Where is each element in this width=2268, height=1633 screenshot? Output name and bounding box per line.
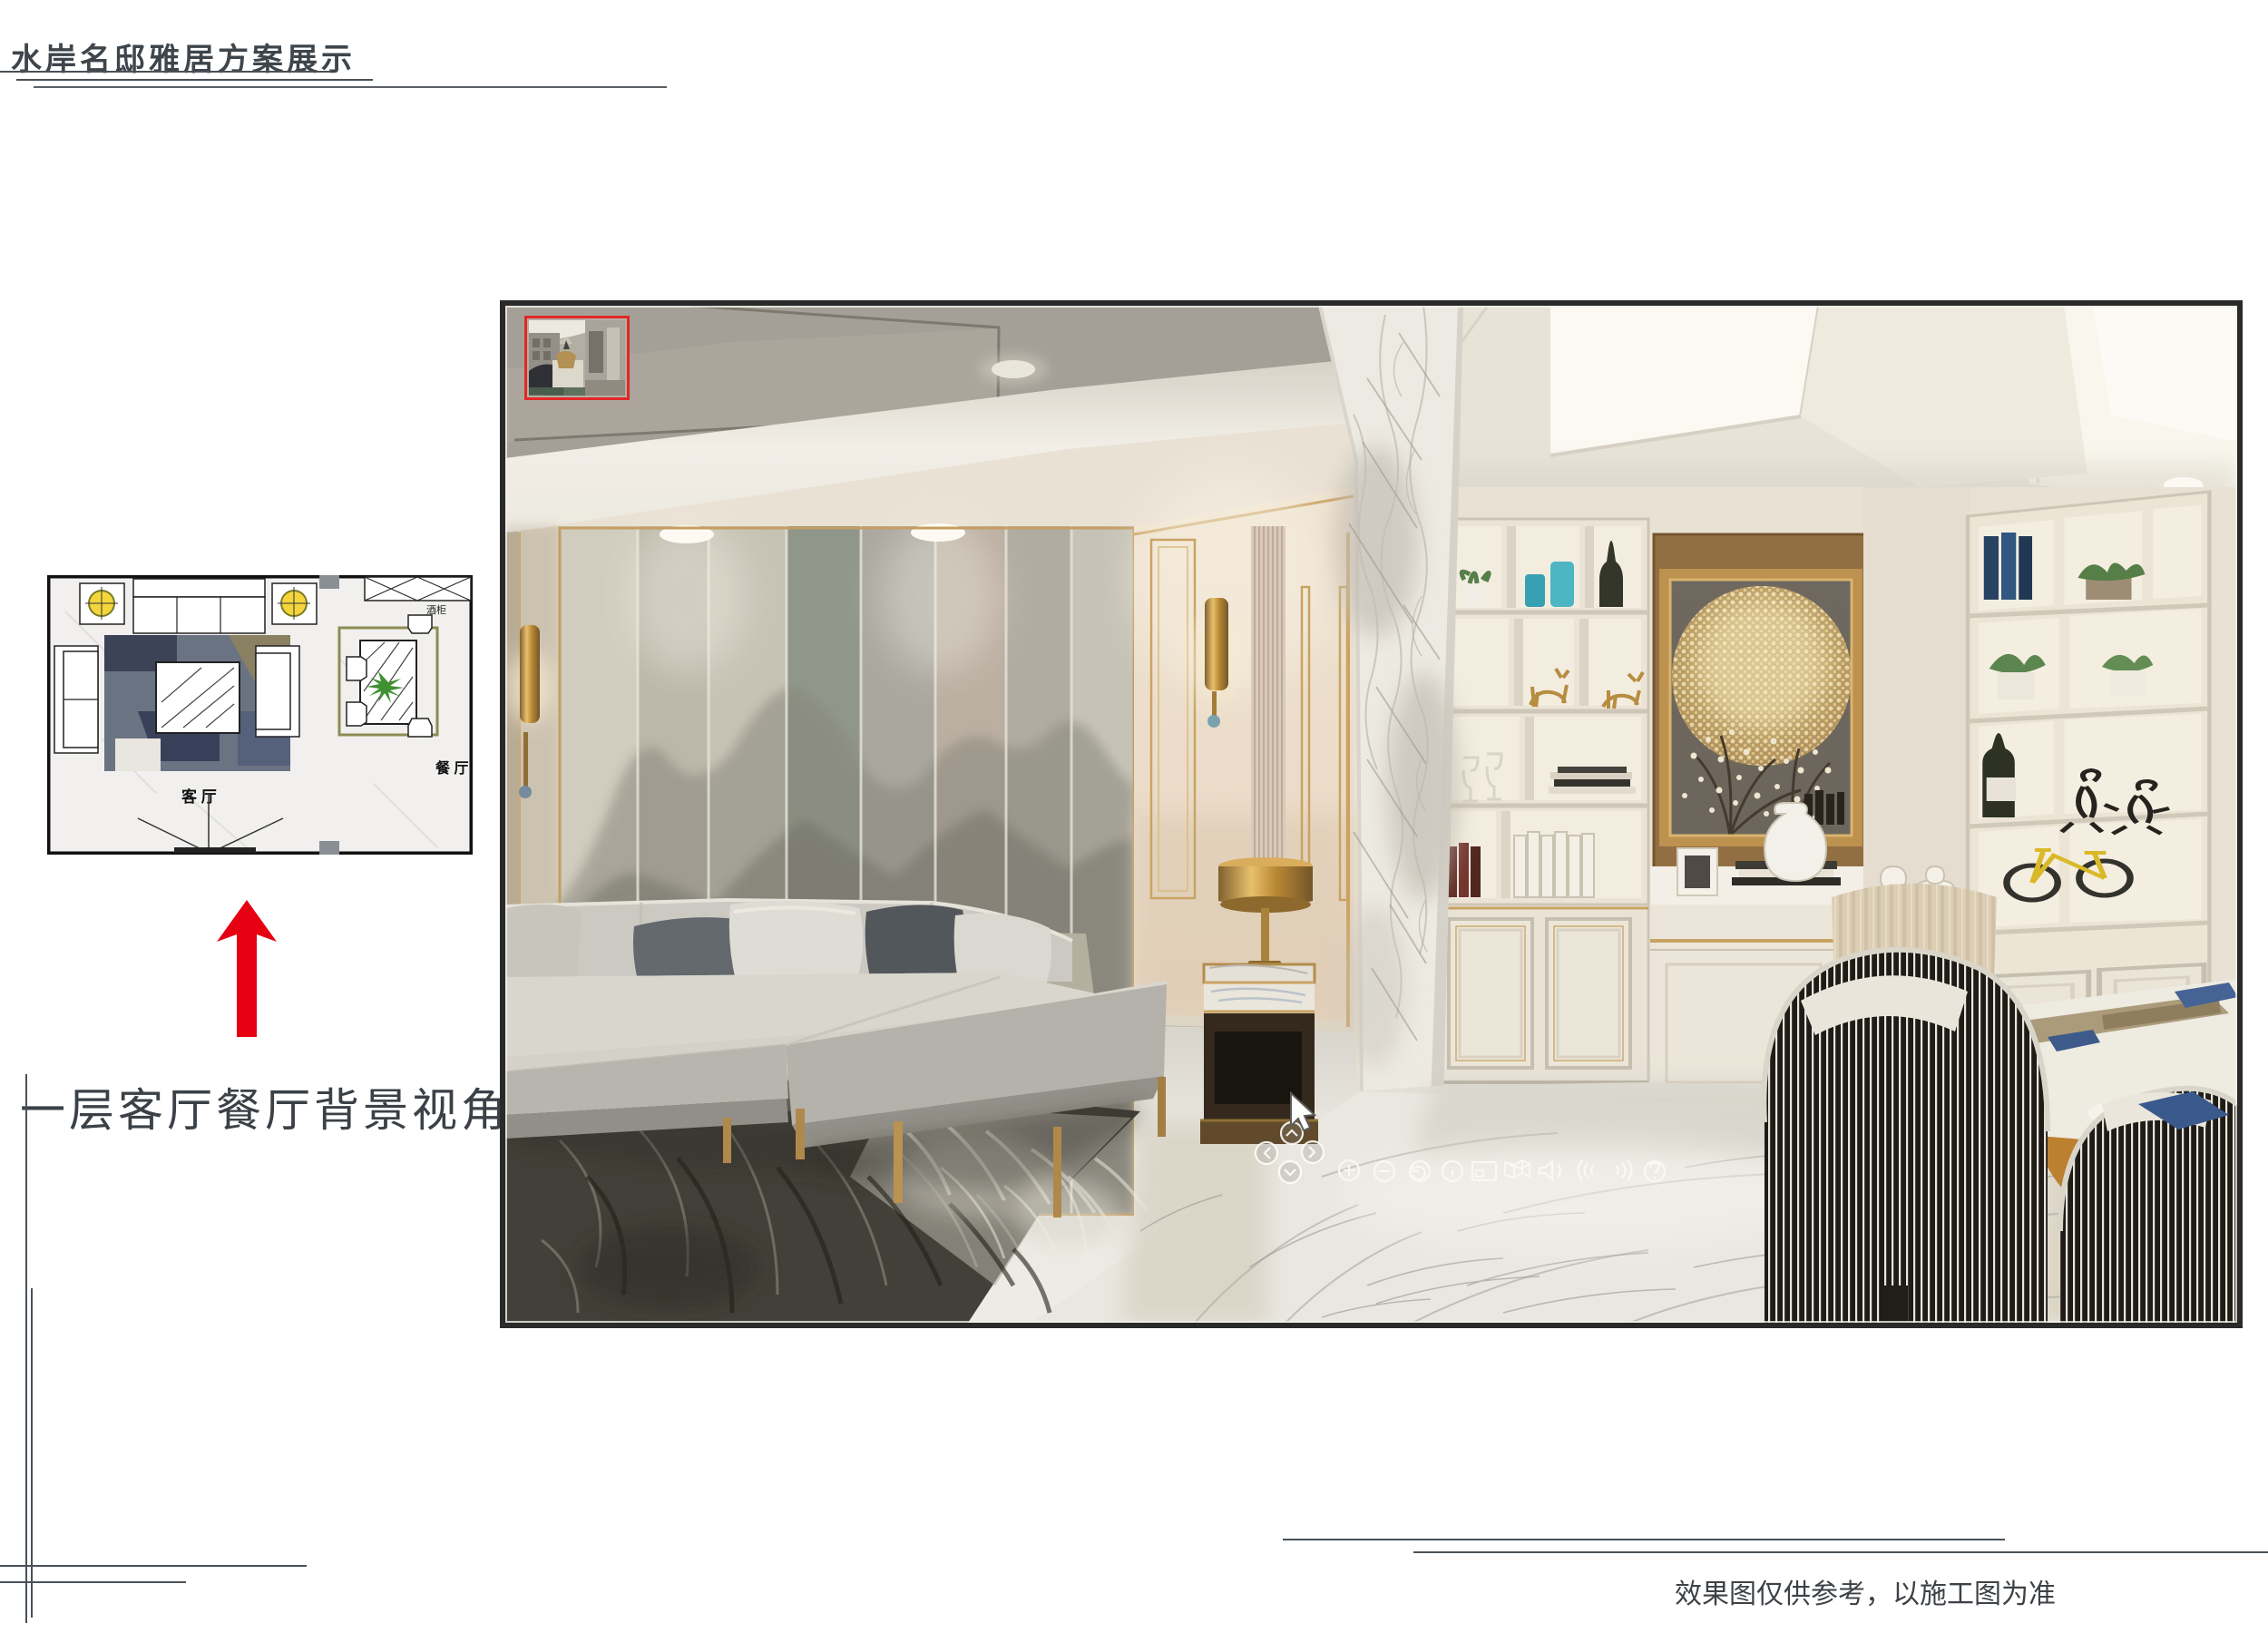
svg-text:餐 厅: 餐 厅 (435, 759, 468, 777)
svg-text:客 厅: 客 厅 (181, 787, 217, 806)
svg-text:酒柜: 酒柜 (426, 604, 446, 616)
